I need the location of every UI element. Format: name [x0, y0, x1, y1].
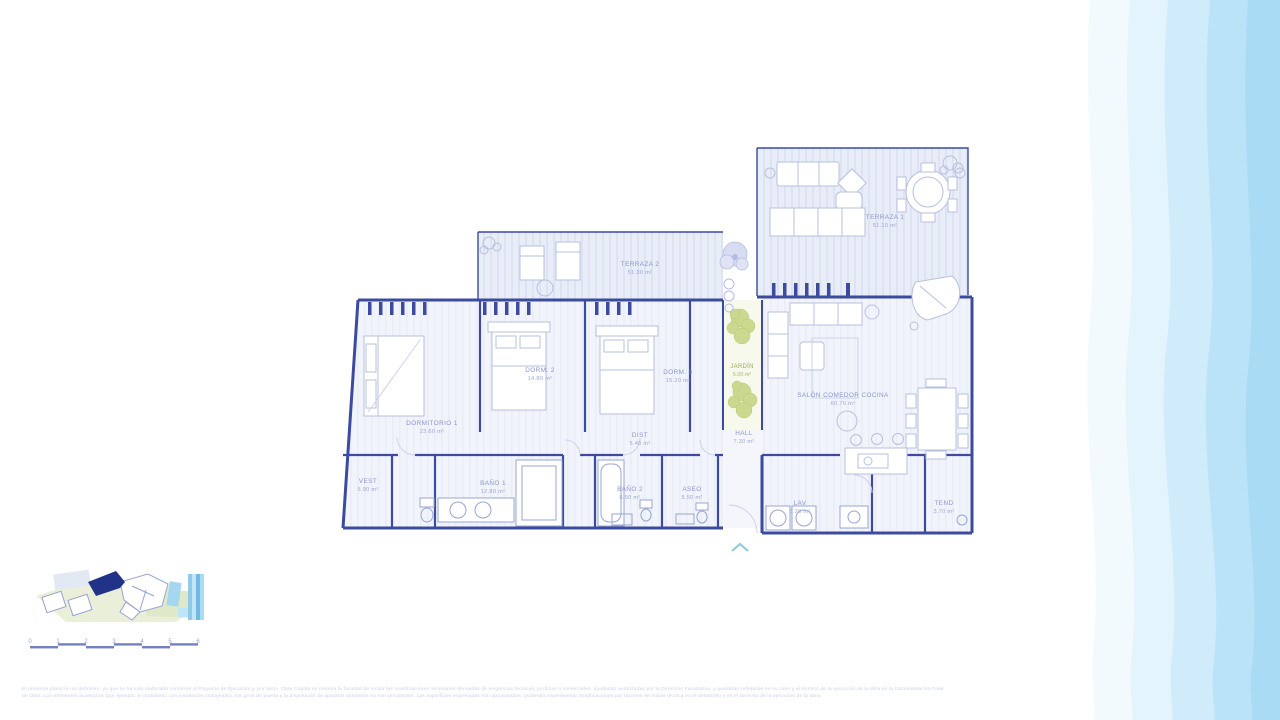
room-label-terraza2: TERRAZA 2 — [621, 261, 659, 268]
room-area-bano1: 12.80 m² — [481, 489, 505, 495]
entry-arrow-icon — [732, 544, 748, 551]
room-area-lav: 8.20 m² — [789, 509, 810, 515]
room-area-dorm3: 15.20 m² — [666, 378, 690, 384]
room-label-terraza1: TERRAZA 1 — [866, 214, 904, 221]
room-area-terraza1: 51.10 m² — [873, 223, 897, 229]
room-label-jardin: JARDÍN — [730, 363, 753, 370]
room-area-salon: 60.70 m² — [831, 401, 855, 407]
room-label-dorm2: DORM. 2 — [525, 367, 554, 374]
inset-stripe-band — [188, 574, 204, 620]
room-area-vest: 5.90 m² — [357, 487, 378, 493]
room-area-bano2: 6.50 m² — [619, 495, 640, 501]
room-area-dormitorio1: 23.60 m² — [420, 429, 444, 435]
room-label-dist: DIST — [632, 432, 648, 439]
room-label-lav: LAV — [794, 500, 807, 507]
disclaimer-text-line2: de Obra. Los elementos accesorios (por e… — [22, 694, 1080, 700]
room-label-bano2: BAÑO 2 — [617, 484, 643, 493]
room-label-hall: HALL — [735, 430, 753, 437]
floor-fills — [343, 148, 972, 533]
room-label-vest: VEST — [359, 478, 377, 485]
room-label-dormitorio1: DORMITORIO 1 — [406, 420, 458, 427]
disclaimer-text-line1: El presente plano no es definitivo, ya q… — [22, 687, 1080, 693]
scale-tick: 0 — [28, 639, 32, 645]
room-area-hall: 7.30 m² — [733, 439, 754, 445]
scale-bar: 0 1 2 3 4 5 6 — [28, 636, 200, 652]
page: TERRAZA 1 51.10 m² TERRAZA 2 51.30 m² DO… — [0, 0, 1280, 720]
room-area-aseo: 5.50 m² — [681, 495, 702, 501]
room-area-tend: 3.70 m² — [933, 509, 954, 515]
room-label-aseo: ASEO — [682, 486, 701, 493]
room-area-dist: 5.40 m² — [629, 441, 650, 447]
room-area-terraza2: 51.30 m² — [628, 270, 652, 276]
room-label-dorm3: DORM. 3 — [663, 369, 692, 376]
wave-decoration — [1060, 0, 1280, 720]
room-area-jardin: 5.00 m² — [733, 372, 751, 378]
room-label-bano1: BAÑO 1 — [480, 478, 506, 487]
site-plan-inset — [28, 566, 208, 628]
floor-plan: TERRAZA 1 51.10 m² TERRAZA 2 51.30 m² DO… — [335, 140, 985, 560]
room-area-dorm2: 14.80 m² — [528, 376, 552, 382]
room-label-salon: SALÓN COMEDOR COCINA — [797, 390, 889, 399]
room-label-tend: TEND — [935, 500, 954, 507]
